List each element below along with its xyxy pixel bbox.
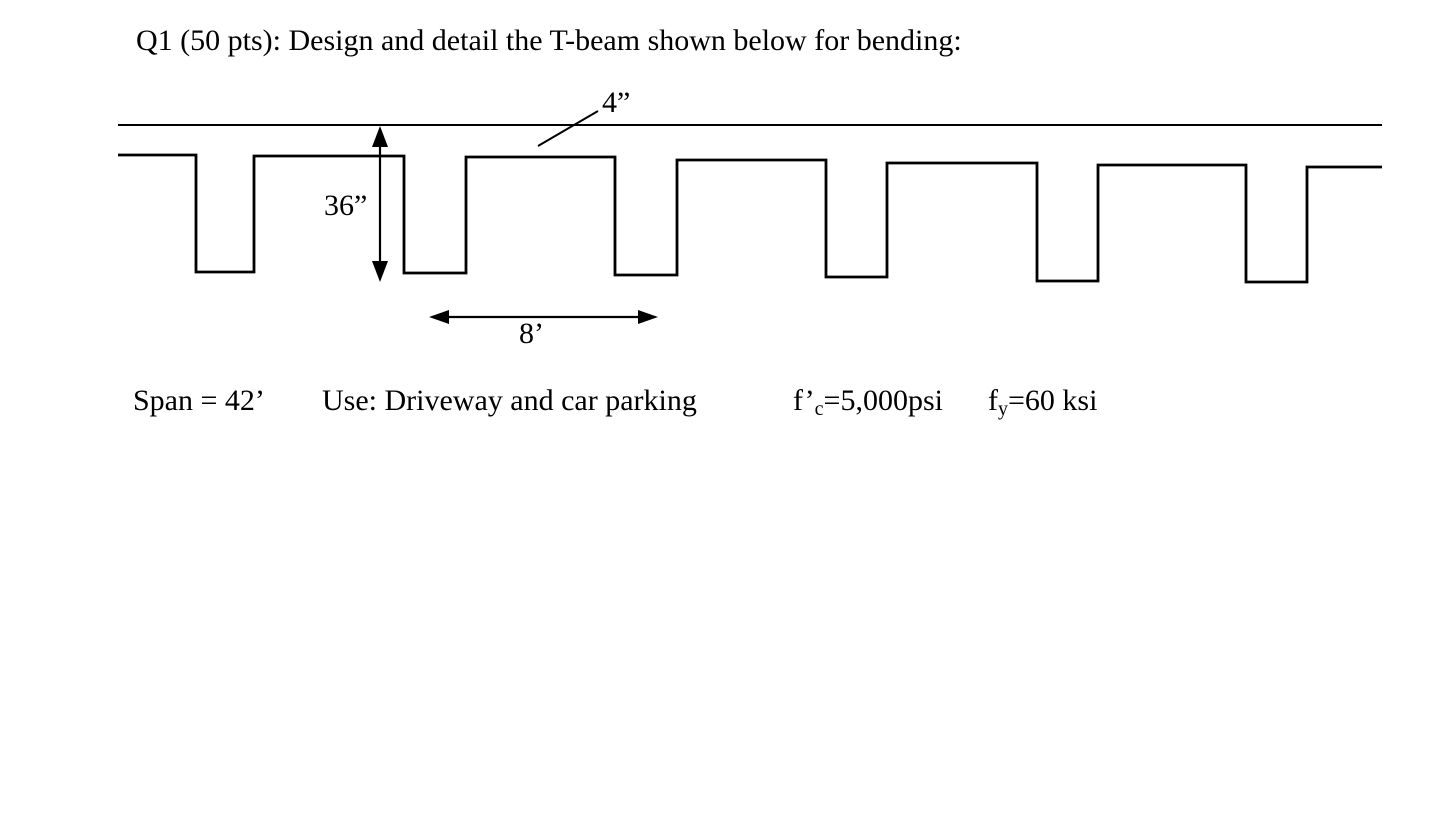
steel-strength-text: fy=60 ksi	[988, 384, 1097, 418]
fc-value: =5,000psi	[824, 384, 943, 417]
fy-symbol: f	[988, 384, 998, 417]
t-beam-section-diagram: 4” 36” 8’	[0, 0, 1430, 838]
depth-arrow-up-head	[372, 126, 388, 147]
fc-symbol: f’	[793, 384, 815, 417]
spacing-arrow-right-head	[638, 310, 658, 324]
fy-value: =60 ksi	[1008, 384, 1097, 417]
spacing-arrow-left-head	[429, 310, 449, 324]
flange-leader-line	[538, 111, 598, 146]
depth-arrow-down-head	[372, 261, 388, 282]
usage-text: Use: Driveway and car parking	[322, 384, 697, 418]
span-value-text: Span = 42’	[133, 384, 265, 418]
spacing-label: 8’	[519, 317, 544, 350]
depth-label: 36”	[324, 189, 367, 222]
beam-section-profile	[118, 155, 1382, 282]
depth-dimension-arrow	[372, 126, 388, 282]
fc-subscript: c	[815, 398, 824, 420]
flange-thickness-label: 4”	[602, 86, 630, 119]
concrete-strength-text: f’c=5,000psi	[793, 384, 943, 418]
fy-subscript: y	[998, 398, 1008, 420]
